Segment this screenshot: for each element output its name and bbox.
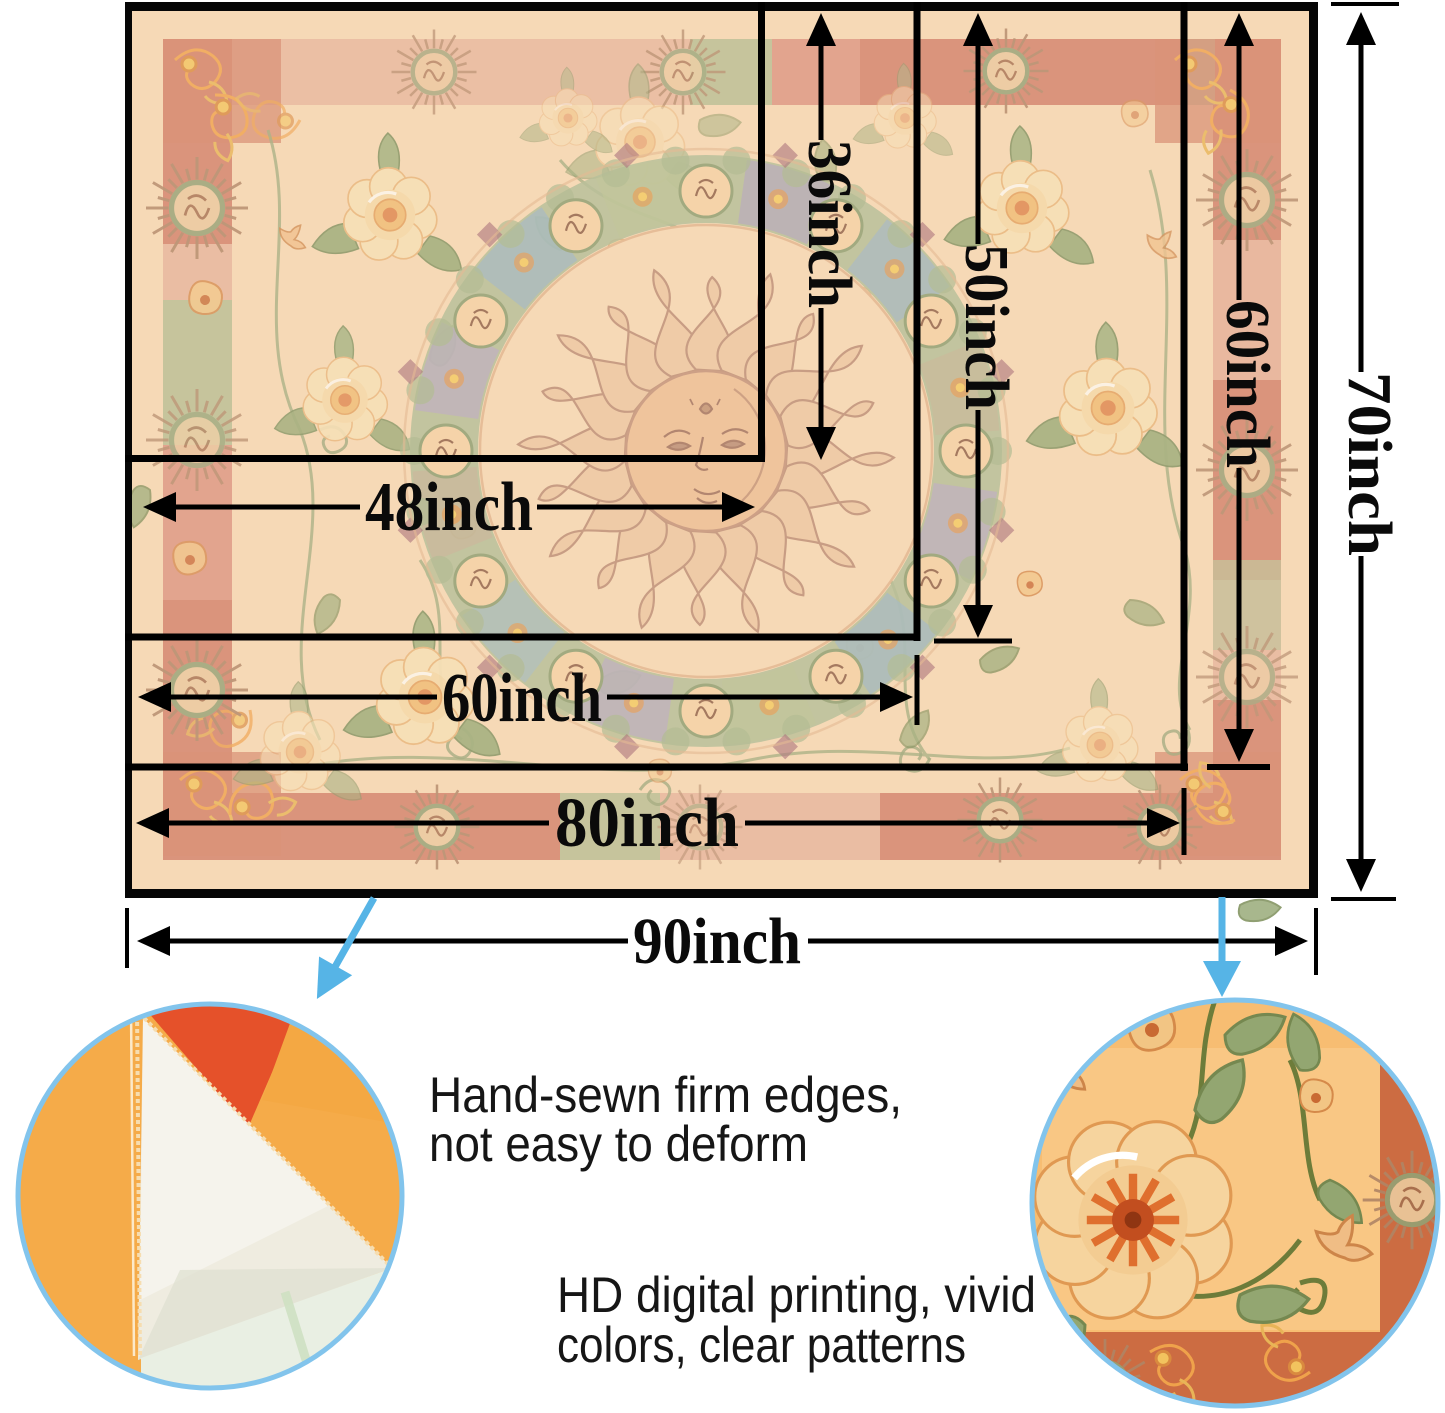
svg-text:not easy to deform: not easy to deform — [429, 1116, 808, 1172]
svg-text:60inch: 60inch — [442, 660, 602, 737]
svg-text:90inch: 90inch — [633, 905, 801, 978]
svg-text:Hand-sewn firm edges,: Hand-sewn firm edges, — [429, 1067, 902, 1123]
svg-text:80inch: 80inch — [555, 785, 739, 862]
svg-text:60inch: 60inch — [1213, 300, 1281, 468]
svg-text:50inch: 50inch — [952, 244, 1020, 410]
svg-text:70inch: 70inch — [1335, 372, 1403, 556]
svg-text:36inch: 36inch — [795, 140, 863, 308]
svg-text:48inch: 48inch — [365, 469, 533, 546]
svg-text:colors, clear patterns: colors, clear patterns — [557, 1317, 966, 1373]
svg-text:HD digital printing, vivid: HD digital printing, vivid — [557, 1267, 1036, 1323]
